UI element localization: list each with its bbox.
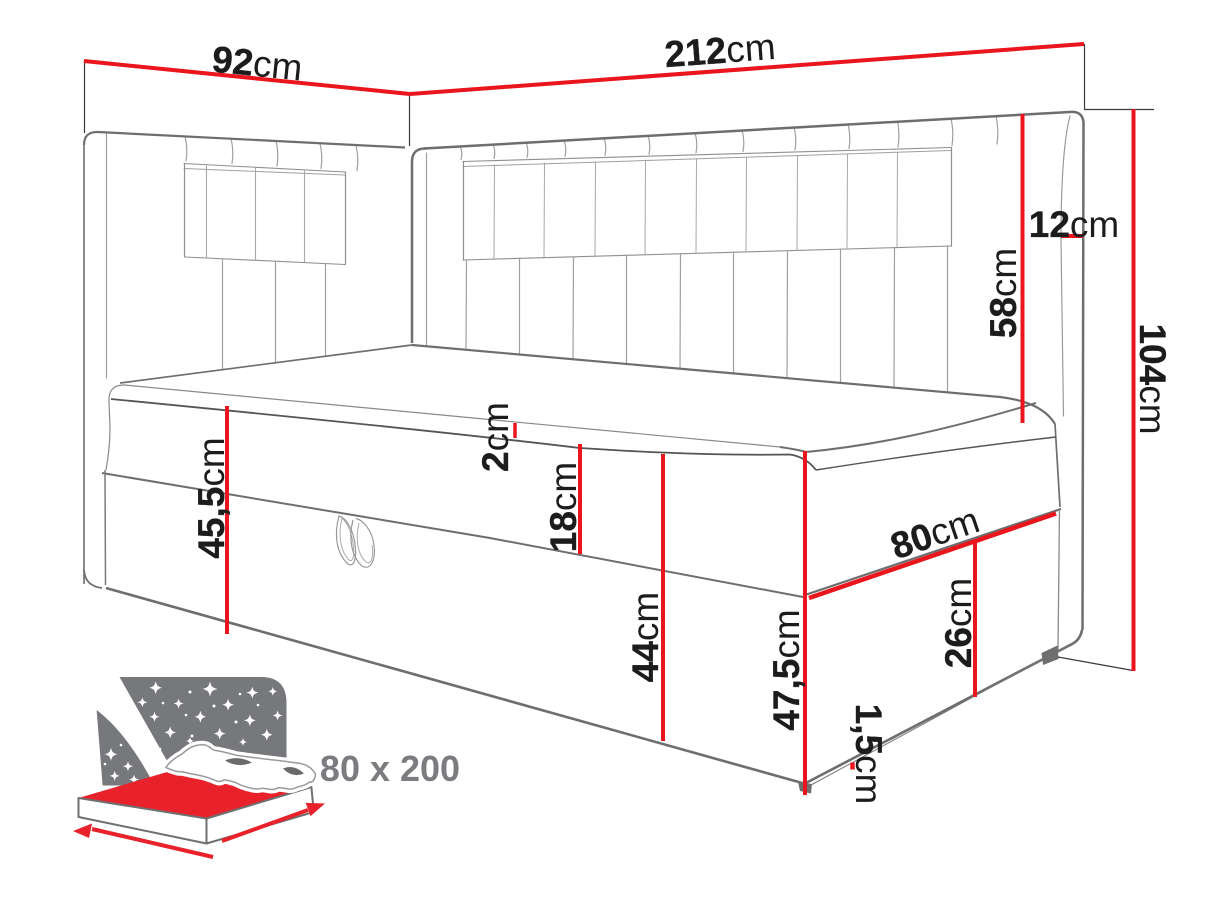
svg-text:18cm: 18cm (543, 462, 584, 552)
svg-text:45,5cm: 45,5cm (191, 437, 232, 558)
svg-text:1,5cm: 1,5cm (848, 704, 889, 805)
svg-text:26cm: 26cm (938, 578, 979, 668)
svg-text:47,5cm: 47,5cm (766, 609, 807, 730)
svg-text:104cm: 104cm (1132, 323, 1173, 434)
svg-text:44cm: 44cm (625, 592, 666, 682)
svg-text:212cm: 212cm (663, 26, 777, 75)
svg-text:58cm: 58cm (983, 248, 1024, 338)
svg-text:80 x 200: 80 x 200 (320, 748, 460, 789)
svg-text:12cm: 12cm (1029, 204, 1119, 245)
svg-text:2cm: 2cm (475, 402, 516, 472)
